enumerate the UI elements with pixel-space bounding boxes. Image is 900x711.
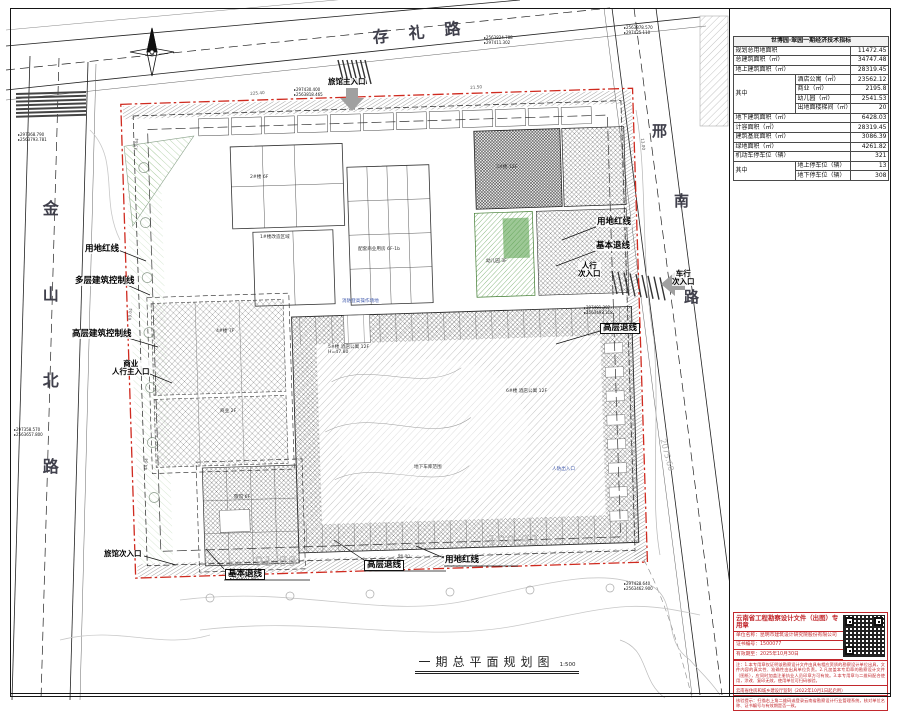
indicator-label: 地上建筑面积（㎡） bbox=[734, 65, 851, 75]
indicator-row: 地上建筑面积（㎡）28319.45 bbox=[734, 65, 889, 75]
right-panel: 世博园·翠园一期经济技术指标规划总用地面积11472.45总建筑面积（㎡）347… bbox=[729, 8, 891, 697]
indicator-value: 20 bbox=[851, 104, 889, 114]
indicator-label: 建筑基底面积（㎡） bbox=[734, 132, 851, 142]
indicator-row: 规划总用地面积11472.45 bbox=[734, 46, 889, 56]
trees-south bbox=[206, 584, 614, 602]
indicator-row: 计容面积（㎡）28319.45 bbox=[734, 123, 889, 133]
crosswalk-main-entrance bbox=[338, 60, 371, 84]
building-central-highrise bbox=[292, 306, 639, 553]
indicator-table: 世博园·翠园一期经济技术指标规划总用地面积11472.45总建筑面积（㎡）347… bbox=[733, 36, 889, 181]
qr-code bbox=[843, 615, 885, 657]
north-arrow-icon bbox=[130, 28, 174, 76]
indicator-label: 机动车停车位（辆） bbox=[734, 152, 851, 162]
indicator-row: 其中地上停车位（辆）13 bbox=[734, 161, 889, 171]
indicator-label: 地上停车位（辆） bbox=[796, 161, 851, 171]
indicator-value: 2541.53 bbox=[851, 94, 889, 104]
indicator-value: 321 bbox=[851, 152, 889, 162]
crosswalk-left-road bbox=[16, 92, 86, 117]
site-parcel-group bbox=[121, 88, 648, 578]
indicator-value: 23562.12 bbox=[851, 75, 889, 85]
approval-stamp: 云南省工程勘察设计文件（出图）专用章 单位名称：昆明市建筑设计研究院股份有限公司… bbox=[733, 612, 888, 711]
stamp-field-unit-name: 单位名称：昆明市建筑设计研究院股份有限公司 bbox=[734, 632, 843, 641]
stamp-footer2: 核验提示：扫描右上角二维码或登录云南省勘察设计行业管理系统，核对单位名称、证书编… bbox=[734, 696, 887, 710]
qr-finder-icon bbox=[845, 617, 854, 626]
indicator-value: 28319.45 bbox=[851, 65, 889, 75]
qr-finder-icon bbox=[845, 646, 854, 655]
indicator-label: 总建筑面积（㎡） bbox=[734, 56, 851, 66]
buildings-west bbox=[151, 299, 299, 567]
indicator-value: 2195.8 bbox=[851, 84, 889, 94]
indicator-value: 28319.45 bbox=[851, 123, 889, 133]
arrow-vehicle-entrance bbox=[661, 272, 685, 296]
stamp-field-valid-until: 有效期至：2025年10月30日 bbox=[734, 650, 843, 659]
stamp-footer1: 云南省住房和城乡建设厅监制（2022年10月1日起启用） bbox=[734, 686, 887, 696]
indicator-row: 总建筑面积（㎡）34747.48 bbox=[734, 56, 889, 66]
indicator-value: 6428.03 bbox=[851, 113, 889, 123]
drawing-sheet: 存礼路金山北路邢南路用地红线多层建筑控制线高层建筑控制线商业 人行主入口旅馆主入… bbox=[0, 0, 900, 704]
indicator-label: 出地面楼梯间（㎡） bbox=[796, 104, 851, 114]
buildings-northeast bbox=[472, 127, 629, 298]
indicator-row: 建筑基底面积（㎡）3086.39 bbox=[734, 132, 889, 142]
stamp-notice: 注：1.本专用章仅证明该勘察设计文件由具有相应资质的勘察设计单位出具，文件内容的… bbox=[734, 660, 887, 687]
indicator-label: 规划总用地面积 bbox=[734, 46, 851, 56]
indicator-row: 其中酒店公寓（㎡）23562.12 bbox=[734, 75, 889, 85]
indicator-value: 308 bbox=[851, 171, 889, 181]
indicator-label: 地下建筑面积（㎡） bbox=[734, 113, 851, 123]
indicator-label: 计容面积（㎡） bbox=[734, 123, 851, 133]
indicator-label: 酒店公寓（㎡） bbox=[796, 75, 851, 85]
indicator-value: 11472.45 bbox=[851, 46, 889, 56]
qr-finder-icon bbox=[874, 617, 883, 626]
indicator-table-title: 世博园·翠园一期经济技术指标 bbox=[734, 37, 889, 47]
indicator-value: 4261.82 bbox=[851, 142, 889, 152]
indicator-row: 机动车停车位（辆）321 bbox=[734, 152, 889, 162]
buildings-northwest bbox=[230, 141, 433, 309]
indicator-label: 其中 bbox=[734, 161, 796, 180]
indicator-value: 34747.48 bbox=[851, 56, 889, 66]
indicator-value: 13 bbox=[851, 161, 889, 171]
indicator-label: 其中 bbox=[734, 75, 796, 113]
indicator-row: 地下建筑面积（㎡）6428.03 bbox=[734, 113, 889, 123]
indicator-label: 绿地面积（㎡） bbox=[734, 142, 851, 152]
indicator-row: 绿地面积（㎡）4261.82 bbox=[734, 142, 889, 152]
indicator-label: 幼儿园（㎡） bbox=[796, 94, 851, 104]
indicator-label: 地下停车位（辆） bbox=[796, 171, 851, 181]
stamp-title: 云南省工程勘察设计文件（出图）专用章 bbox=[734, 613, 843, 632]
stamp-field-cert-no: 证书编号：1500077 bbox=[734, 641, 843, 650]
indicator-value: 3086.39 bbox=[851, 132, 889, 142]
site-plan-drawing: { "sheet": { "caption": "一期总平面规划图", "cap… bbox=[0, 0, 900, 704]
indicator-label: 商业（㎡） bbox=[796, 84, 851, 94]
